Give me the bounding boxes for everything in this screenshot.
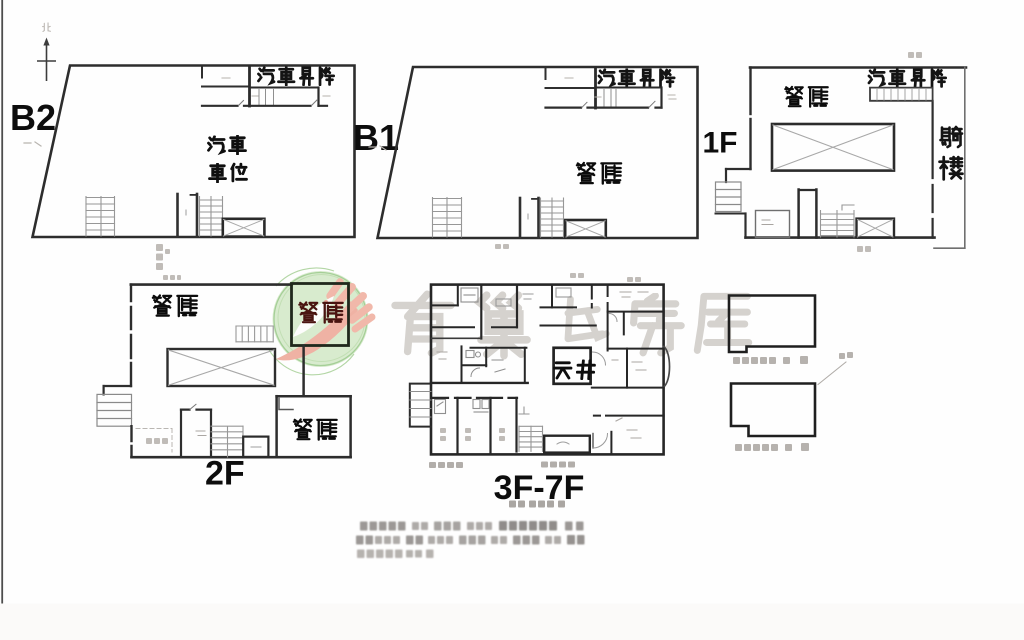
svg-text:B1: B1 bbox=[353, 117, 399, 158]
svg-text:1F: 1F bbox=[702, 127, 737, 160]
svg-text:B2: B2 bbox=[10, 97, 56, 138]
svg-text:2F: 2F bbox=[205, 455, 245, 493]
